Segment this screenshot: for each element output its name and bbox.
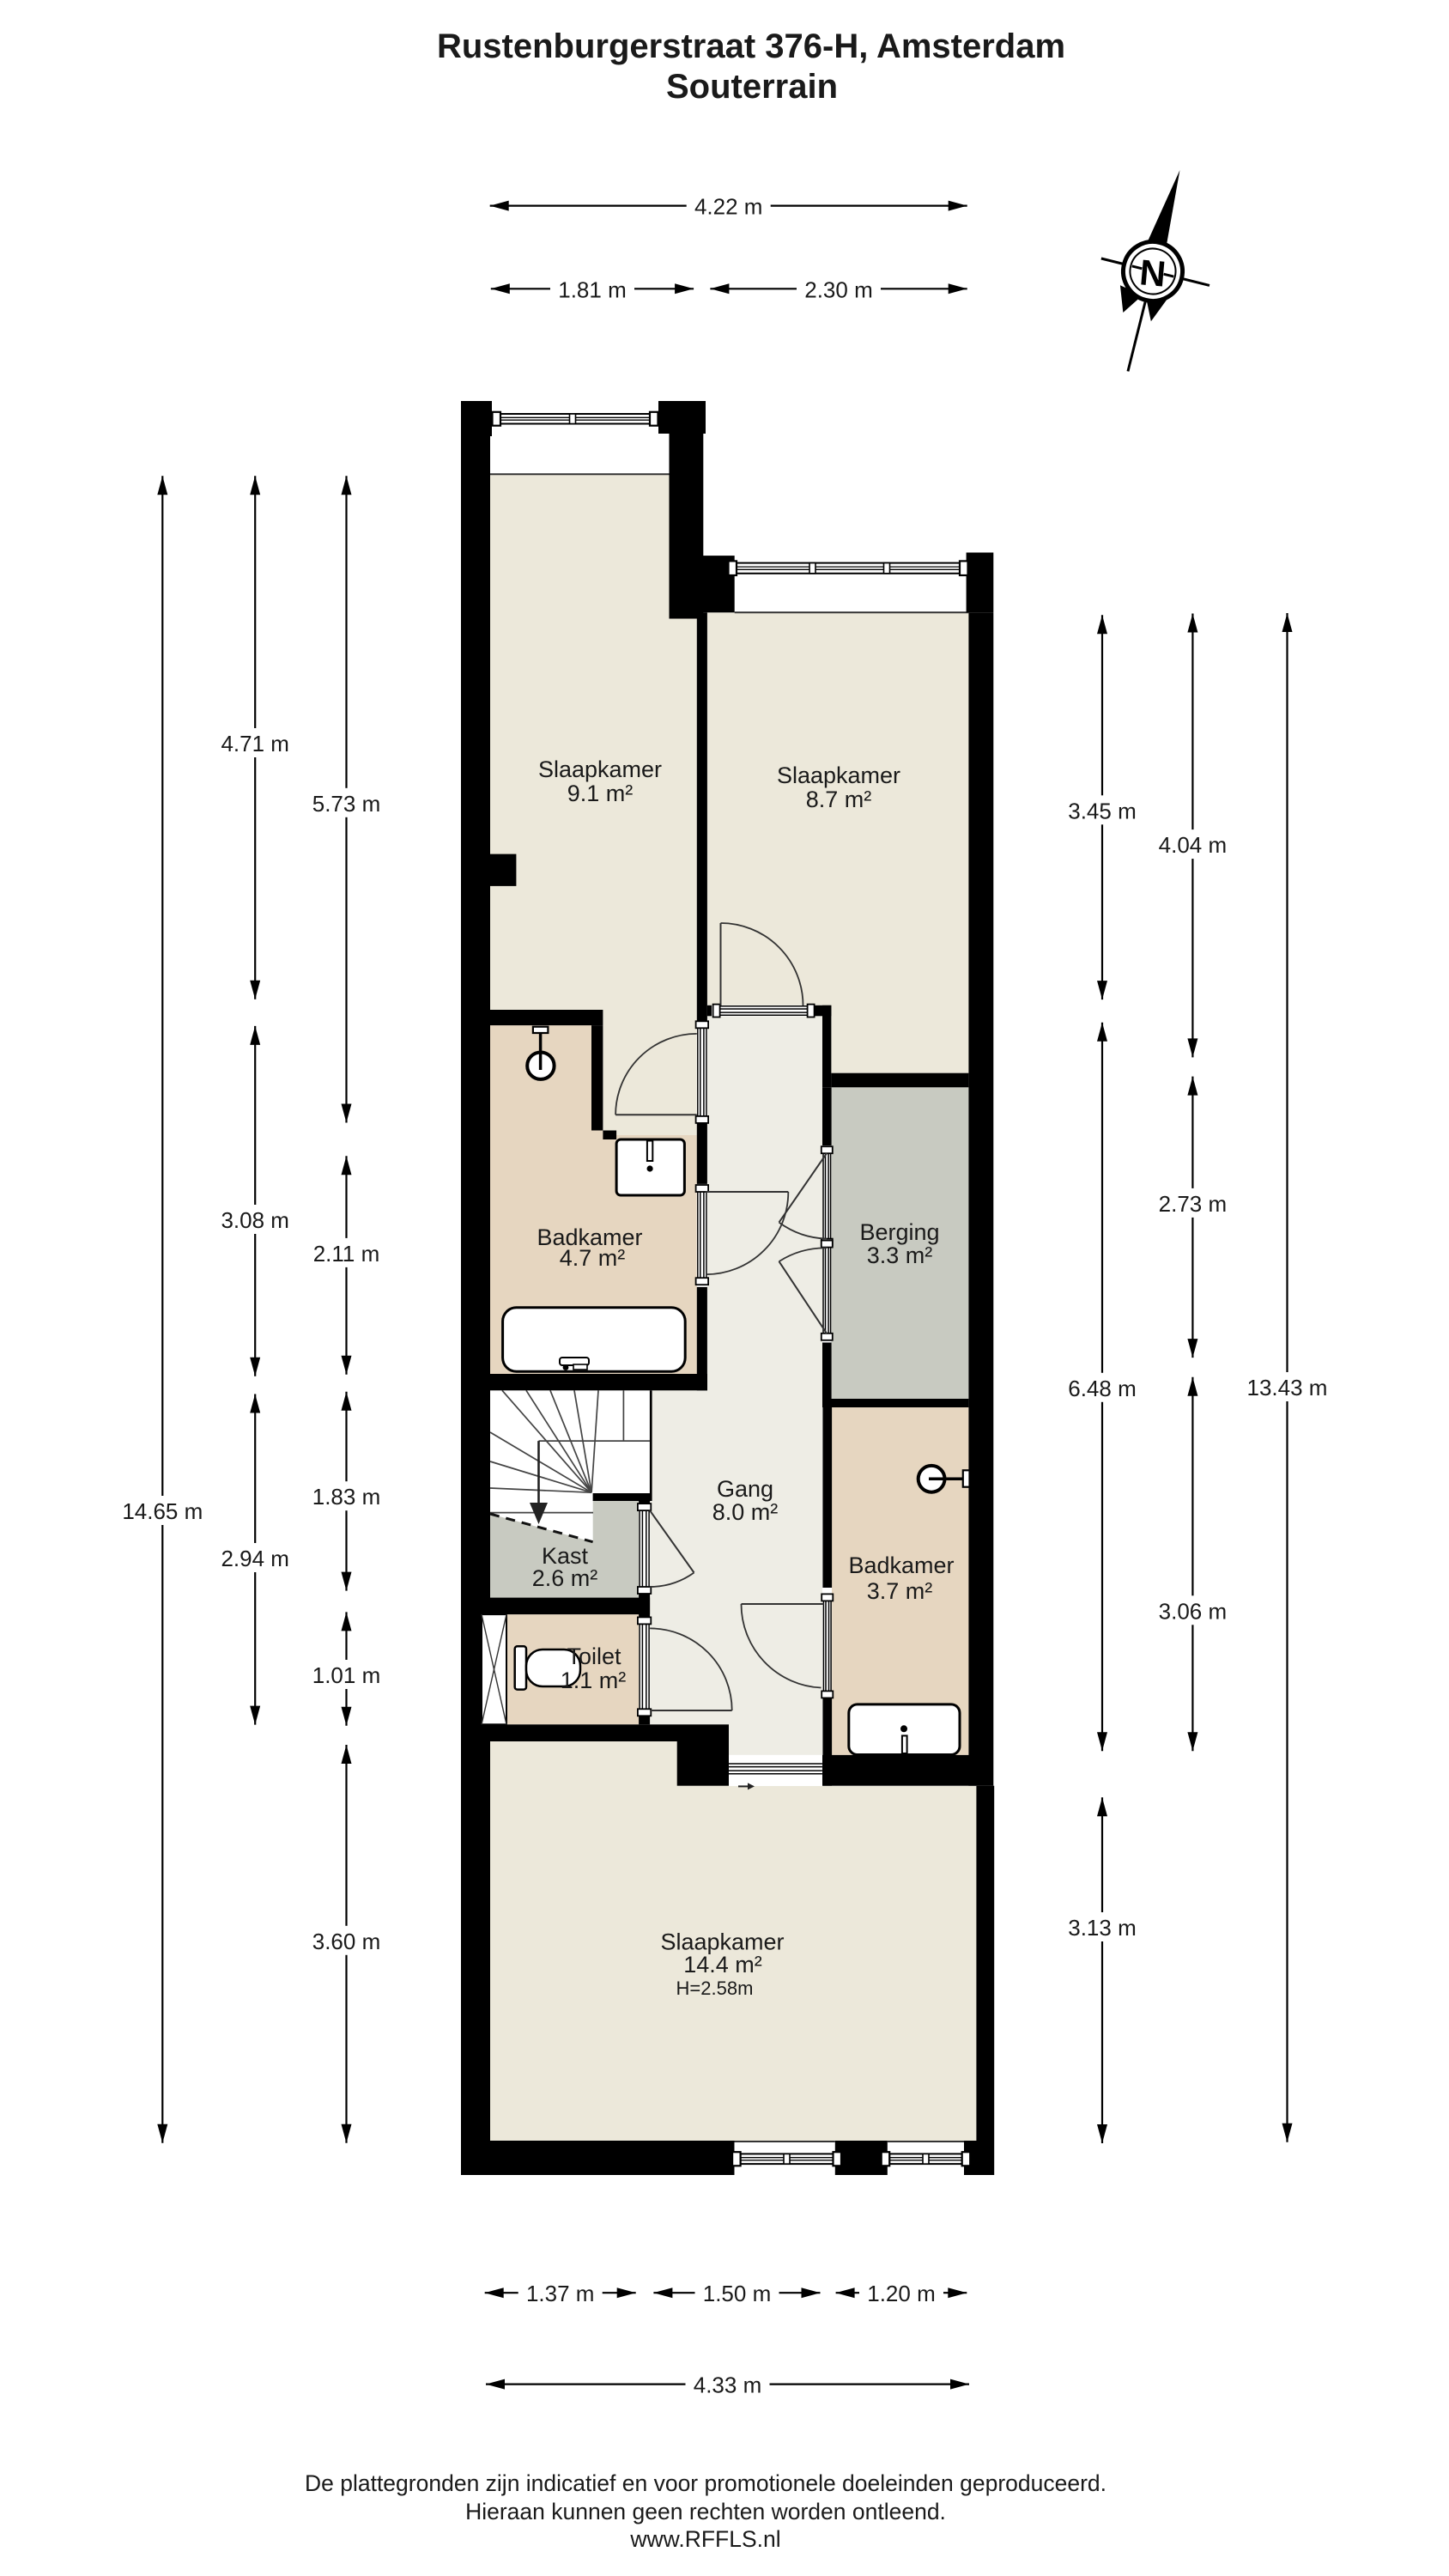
svg-text:1.50 m: 1.50 m: [703, 2281, 772, 2306]
svg-text:4.7 m²: 4.7 m²: [560, 1245, 626, 1271]
svg-text:14.65 m: 14.65 m: [122, 1498, 203, 1524]
svg-text:2.6 m²: 2.6 m²: [532, 1565, 598, 1591]
svg-text:3.06 m: 3.06 m: [1159, 1598, 1228, 1624]
svg-text:5.73 m: 5.73 m: [312, 791, 381, 817]
svg-text:3.60 m: 3.60 m: [312, 1929, 381, 1954]
svg-text:13.43 m: 13.43 m: [1247, 1375, 1328, 1400]
svg-text:1.1 m²: 1.1 m²: [561, 1668, 627, 1693]
svg-text:3.3 m²: 3.3 m²: [867, 1242, 933, 1268]
svg-text:2.94 m: 2.94 m: [221, 1546, 289, 1571]
svg-text:De plattegronden zijn indicati: De plattegronden zijn indicatief en voor…: [305, 2470, 1106, 2496]
svg-text:2.30 m: 2.30 m: [804, 276, 873, 302]
svg-text:1.20 m: 1.20 m: [867, 2281, 936, 2306]
svg-text:Berging: Berging: [859, 1219, 939, 1245]
svg-text:1.01 m: 1.01 m: [312, 1662, 381, 1688]
svg-text:Slaapkamer: Slaapkamer: [777, 762, 900, 788]
svg-text:Souterrain: Souterrain: [666, 68, 838, 106]
svg-text:3.08 m: 3.08 m: [221, 1207, 289, 1233]
svg-text:N: N: [1138, 252, 1167, 294]
svg-text:4.33 m: 4.33 m: [694, 2372, 762, 2398]
svg-text:Gang: Gang: [717, 1476, 773, 1502]
svg-text:www.RFFLS.nl: www.RFFLS.nl: [629, 2526, 780, 2552]
svg-text:1.83 m: 1.83 m: [312, 1484, 381, 1510]
svg-text:H=2.58m: H=2.58m: [676, 1978, 754, 1999]
svg-text:9.1 m²: 9.1 m²: [567, 781, 634, 806]
svg-text:8.7 m²: 8.7 m²: [806, 787, 872, 812]
svg-text:1.81 m: 1.81 m: [558, 276, 627, 302]
svg-text:1.37 m: 1.37 m: [526, 2281, 595, 2306]
svg-text:4.71 m: 4.71 m: [221, 731, 289, 756]
svg-text:Rustenburgerstraat 376-H, Amst: Rustenburgerstraat 376-H, Amsterdam: [437, 27, 1065, 65]
svg-text:Slaapkamer: Slaapkamer: [538, 756, 662, 782]
svg-text:Toilet: Toilet: [567, 1643, 621, 1669]
svg-text:3.45 m: 3.45 m: [1068, 798, 1137, 823]
svg-text:Slaapkamer: Slaapkamer: [660, 1929, 784, 1955]
svg-text:14.4 m²: 14.4 m²: [683, 1952, 762, 1978]
svg-text:4.04 m: 4.04 m: [1159, 832, 1228, 858]
svg-text:3.13 m: 3.13 m: [1068, 1915, 1137, 1941]
svg-text:4.22 m: 4.22 m: [694, 194, 763, 220]
svg-text:2.73 m: 2.73 m: [1159, 1191, 1228, 1217]
svg-text:2.11 m: 2.11 m: [313, 1241, 380, 1267]
svg-text:3.7 m²: 3.7 m²: [867, 1578, 933, 1604]
svg-text:Badkamer: Badkamer: [848, 1552, 954, 1578]
svg-text:6.48 m: 6.48 m: [1068, 1376, 1137, 1401]
svg-text:Hieraan kunnen geen rechten wo: Hieraan kunnen geen rechten worden ontle…: [465, 2499, 946, 2524]
svg-text:8.0 m²: 8.0 m²: [712, 1499, 779, 1525]
